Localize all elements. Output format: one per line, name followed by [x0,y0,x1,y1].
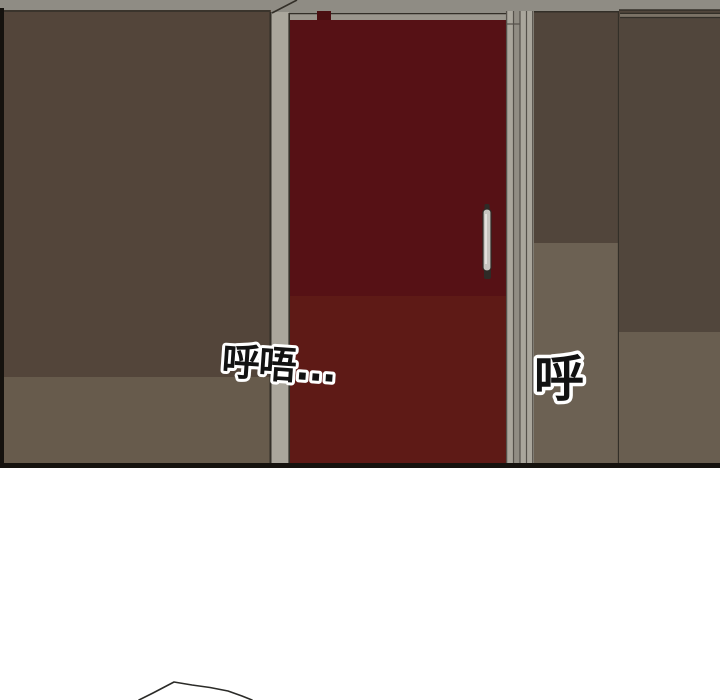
door-upper [290,20,506,296]
door-frame-left [272,12,290,466]
door-handle [483,204,491,279]
sfx-breath-left: 呼唔... [220,339,337,391]
sfx-breath-right: 呼 [534,350,584,408]
door-top-notch [317,11,331,21]
wall-mid-upper [534,11,619,243]
panel-bottom-border [0,463,720,468]
comic-page: 呼唔... 呼 [0,0,720,700]
wall-right-rail-band [620,14,720,18]
panel-left-border [0,8,4,468]
wall-right-lower [619,332,720,466]
ceiling-over-door [266,0,536,14]
wall-left-lower [3,377,271,466]
door-handle-bar [483,209,491,271]
wall-left-upper [3,10,271,378]
panel-scene: 呼唔... 呼 [0,0,720,700]
wall-right-upper [619,10,720,332]
door-frame-right-mid-strip [514,11,521,466]
